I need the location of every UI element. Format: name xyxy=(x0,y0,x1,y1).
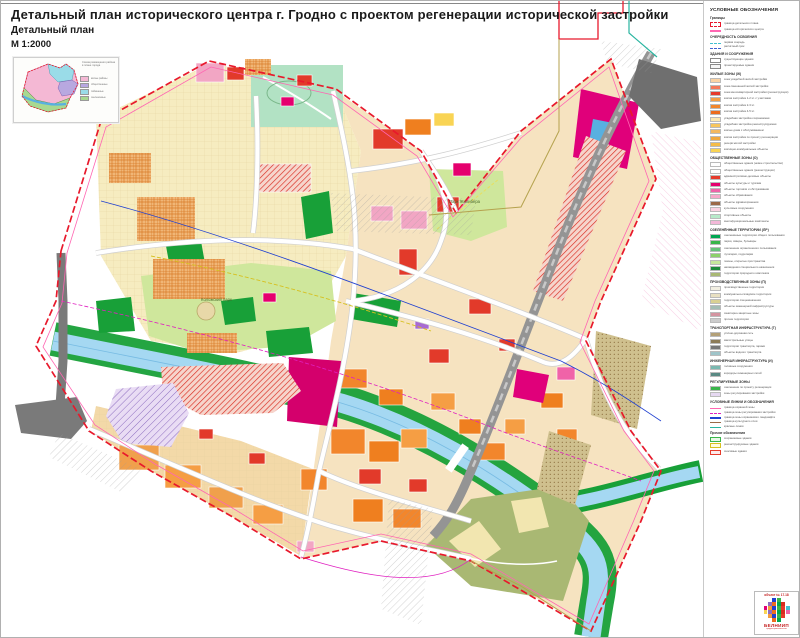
inset-swatch-icon xyxy=(80,89,89,95)
legend-row: усадебная застройка сохраняемая xyxy=(710,117,797,122)
legend-section-header: ОБЩЕСТВЕННЫЕ ЗОНЫ (О) xyxy=(710,156,797,160)
legend-swatch-icon xyxy=(710,272,721,277)
legend-swatch-icon xyxy=(710,129,721,134)
legend-row: озеленённые территории общего пользовани… xyxy=(710,234,797,239)
page-subtitle: Детальный план xyxy=(11,25,701,36)
legend-swatch-icon xyxy=(710,123,721,128)
legend-swatch-icon xyxy=(710,247,721,252)
legend-row-label: территории спецназначения xyxy=(724,299,761,302)
legend-swatch-icon xyxy=(710,162,721,167)
legend-row-label: спортивные объекты xyxy=(724,214,751,217)
legend-row-label: первая очередь xyxy=(724,41,745,44)
legend-row-label: реконструируемые здания xyxy=(724,443,758,446)
scale-label: М 1:2000 xyxy=(11,39,701,50)
kolozha-park-label: Коложский парк xyxy=(201,297,232,302)
legend-row-label: жилая застройка по проекту регенерации xyxy=(724,136,778,139)
legend-swatch-icon xyxy=(710,48,721,49)
inset-legend-label: общественные xyxy=(91,84,108,86)
legend-swatch-icon xyxy=(710,104,721,109)
legend-section-header: ТРАНСПОРТНАЯ ИНФРАСТРУКТУРА (Т) xyxy=(710,326,797,330)
legend-row: зоны регулирования застройки xyxy=(710,392,797,397)
legend-swatch-icon xyxy=(710,413,721,414)
gilibert-park-label: Парк Жилибера xyxy=(449,199,481,204)
legend-swatch-icon xyxy=(710,148,721,153)
legend-row: жилая застройка 1-2 эт. с участками xyxy=(710,97,797,102)
logo-tile xyxy=(786,606,790,610)
legend-row: зона смешанной жилой застройки xyxy=(710,85,797,90)
legend-section-header: ИНЖЕНЕРНАЯ ИНФРАСТРУКТУРА (И) xyxy=(710,359,797,363)
logo-tile xyxy=(768,618,772,622)
legend-row-label: магистральные улицы xyxy=(724,339,753,342)
legend-row-label: жилая застройка 1-2 эт. с участками xyxy=(724,97,771,100)
legend-row: сохраняемые здания xyxy=(710,437,797,442)
inset-legend-label: озеленённые xyxy=(91,97,106,99)
legend-swatch-icon xyxy=(710,43,721,44)
legend-row-label: усадебная застройка сохраняемая xyxy=(724,117,769,120)
inset-note: Схема размещения района в плане города xyxy=(82,61,116,67)
legend-swatch-icon xyxy=(710,372,721,377)
legend-row-label: культовые сооружения xyxy=(724,207,754,210)
legend-swatch-icon xyxy=(710,422,721,423)
legend-row: общественные здания (реконструкция) xyxy=(710,169,797,174)
inset-legend: жилые районыобщественныепойменныеозеленё… xyxy=(80,76,116,102)
logo-tile xyxy=(764,598,768,602)
legend-row: спортивные объекты xyxy=(710,214,797,219)
legend-swatch-icon xyxy=(710,207,721,212)
legend-section: ЗДАНИЯ И СООРУЖЕНИЯсуществующие зданияпр… xyxy=(710,52,797,69)
legend-row-label: жилая застройка 4-5 эт. xyxy=(724,110,755,113)
inset-swatch-icon xyxy=(80,76,89,82)
legend-body: Границыграница детального планаграница и… xyxy=(710,16,797,455)
legend-row: санитарно-защитные зоны xyxy=(710,312,797,317)
legend-row-label: общественные здания (новое строительство… xyxy=(724,162,783,165)
legend-swatch-icon xyxy=(710,22,721,27)
legend-row-label: парки, скверы, бульвары xyxy=(724,240,756,243)
legend-row-label: резерв жилой застройки xyxy=(724,142,756,145)
legend-row-label: административно-деловые объекты xyxy=(724,175,771,178)
legend-row: объекты водного транспорта xyxy=(710,351,797,356)
inset-legend-row: общественные xyxy=(80,83,116,89)
legend-row: озеленение ограниченного пользования xyxy=(710,247,797,252)
legend-swatch-icon xyxy=(710,85,721,90)
legend-row: территории транспорта, гаражи xyxy=(710,345,797,350)
legend-row: магистральные улицы xyxy=(710,339,797,344)
legend-row: усадебная застройка реконструируемая xyxy=(710,123,797,128)
legend-section-header: ЖИЛЫЕ ЗОНЫ (Ж) xyxy=(710,72,797,76)
institute-stamp: объект № 17.18 БЕЛНИИП градостроительств… xyxy=(754,591,799,635)
legend-row-label: объекты образования xyxy=(724,194,752,197)
legend-row: газоны, открытые пространства xyxy=(710,260,797,265)
legend-row-label: территории природного комплекса xyxy=(724,272,769,275)
logo-tile xyxy=(764,606,768,610)
logo-tile xyxy=(772,606,776,610)
logo-tile xyxy=(781,614,785,618)
legend-row: коммунально-складские территории xyxy=(710,293,797,298)
plan-sheet: Детальный план исторического центра г. Г… xyxy=(0,0,800,638)
legend-row-label: лугопарки, гидропарки xyxy=(724,253,753,256)
legend-row: парки, скверы, бульвары xyxy=(710,240,797,245)
logo-tile xyxy=(768,598,772,602)
legend-row: улично-дорожная сеть xyxy=(710,332,797,337)
legend-row-label: объекты торговли и обслуживания xyxy=(724,188,769,191)
legend-row-label: граница исторического центра xyxy=(724,28,764,31)
legend-swatch-icon xyxy=(710,214,721,219)
logo-tile xyxy=(764,602,768,606)
legend-row: граница охранной зоны xyxy=(710,406,797,409)
legend-swatch-icon xyxy=(710,437,721,442)
legend-row-label: расчётный срок xyxy=(724,45,744,48)
legend-row-label: существующие здания xyxy=(724,58,753,61)
logo-tile xyxy=(777,614,781,618)
logo-tile xyxy=(786,602,790,606)
legend-swatch-icon xyxy=(710,450,721,455)
legend-row-label: насаждения специального назначения xyxy=(724,266,774,269)
legend-row: зона многоквартирной застройки (реконстр… xyxy=(710,91,797,96)
legend-section: РЕГУЛИРУЕМЫЕ ЗОНЫозеленение по проекту р… xyxy=(710,380,797,397)
legend-row-label: жилая застройка 2-3 эт. xyxy=(724,104,755,107)
legend-swatch-icon xyxy=(710,312,721,317)
legend-row: производственные территории xyxy=(710,286,797,291)
logo-tile xyxy=(777,598,781,602)
legend-row-label: головные сооружения xyxy=(724,365,753,368)
legend-swatch-icon xyxy=(710,142,721,147)
logo-tile xyxy=(777,606,781,610)
legend-row-label: граница зоны регулирования застройки xyxy=(724,411,775,414)
legend-row: многофункциональные комплексы xyxy=(710,220,797,225)
legend-row: жилая застройка 2-3 эт. xyxy=(710,104,797,109)
legend-row: административно-деловые объекты xyxy=(710,175,797,180)
legend-swatch-icon xyxy=(710,293,721,298)
legend-section: Границыграница детального планаграница и… xyxy=(710,16,797,32)
legend-swatch-icon xyxy=(710,175,721,180)
legend-section-header: ОЗЕЛЕНЁННЫЕ ТЕРРИТОРИИ (ЛР) xyxy=(710,228,797,232)
legend-row: территории природного комплекса xyxy=(710,272,797,277)
legend-row: граница зоны регулирования застройки xyxy=(710,411,797,414)
legend-swatch-icon xyxy=(710,260,721,265)
legend-row-label: зона смешанной жилой застройки xyxy=(724,85,768,88)
legend-row-label: улично-дорожная сеть xyxy=(724,332,753,335)
legend-row-label: жилые дома с обслуживанием xyxy=(724,129,764,132)
legend-row: лугопарки, гидропарки xyxy=(710,253,797,258)
legend-row-label: усадебная застройка реконструируемая xyxy=(724,123,776,126)
legend-swatch-icon xyxy=(710,286,721,291)
legend-row: головные сооружения xyxy=(710,365,797,370)
legend-row: озеленение по проекту регенерации xyxy=(710,386,797,391)
legend-swatch-icon xyxy=(710,194,721,199)
legend-row-label: зона многоквартирной застройки (реконстр… xyxy=(724,91,788,94)
legend-swatch-icon xyxy=(710,417,721,418)
logo-tile xyxy=(772,602,776,606)
legend-row-label: озеленение по проекту регенерации xyxy=(724,386,771,389)
legend-swatch-icon xyxy=(710,299,721,304)
legend-swatch-icon xyxy=(710,58,721,63)
legend-row: зона усадебной жилой застройки xyxy=(710,78,797,83)
legend-swatch-icon xyxy=(710,266,721,271)
institute-logo-icon xyxy=(764,598,790,622)
legend-swatch-icon xyxy=(710,169,721,174)
legend-row: жилая застройка по проекту регенерации xyxy=(710,136,797,141)
legend-row: насаждения специального назначения xyxy=(710,266,797,271)
legend-panel: УСЛОВНЫЕ ОБОЗНАЧЕНИЯ Границыграница дета… xyxy=(703,1,800,638)
legend-row-label: озеленённые территории общего пользовани… xyxy=(724,234,785,237)
legend-swatch-icon xyxy=(710,30,721,31)
logo-tile xyxy=(768,614,772,618)
legend-row-label: санитарно-защитные зоны xyxy=(724,312,759,315)
legend-row: резерв жилой застройки xyxy=(710,142,797,147)
legend-row: жилые дома с обслуживанием xyxy=(710,129,797,134)
legend-row-label: сносимые здания xyxy=(724,450,747,453)
legend-swatch-icon xyxy=(710,110,721,115)
legend-section: ИНЖЕНЕРНАЯ ИНФРАСТРУКТУРА (И)головные со… xyxy=(710,359,797,376)
legend-section-header: Прочие обозначения xyxy=(710,431,797,435)
legend-row-label: красные линии xyxy=(724,425,743,428)
legend-row-label: прочие территории xyxy=(724,318,749,321)
legend-swatch-icon xyxy=(710,427,721,428)
logo-tile xyxy=(786,598,790,602)
logo-tile xyxy=(777,610,781,614)
legend-row: реконструируемые здания xyxy=(710,443,797,448)
logo-tile xyxy=(786,618,790,622)
legend-row: культовые сооружения xyxy=(710,207,797,212)
legend-row-label: многофункциональные комплексы xyxy=(724,220,769,223)
page-title: Детальный план исторического центра г. Г… xyxy=(11,7,701,22)
legend-swatch-icon xyxy=(710,188,721,193)
legend-section: ОБЩЕСТВЕННЫЕ ЗОНЫ (О)общественные здания… xyxy=(710,156,797,225)
legend-row-label: газоны, открытые пространства xyxy=(724,260,765,263)
legend-section-header: ПРОИЗВОДСТВЕННЫЕ ЗОНЫ (П) xyxy=(710,280,797,284)
legend-row: красные линии xyxy=(710,425,797,428)
legend-section-header: УСЛОВНЫЕ ЛИНИИ И ОБОЗНАЧЕНИЯ xyxy=(710,400,797,404)
inset-swatch-icon xyxy=(80,96,89,102)
legend-row: жилая застройка 4-5 эт. xyxy=(710,110,797,115)
logo-tile xyxy=(781,602,785,606)
legend-row: проектируемые здания xyxy=(710,64,797,69)
legend-row-label: зона усадебной жилой застройки xyxy=(724,78,767,81)
logo-tile xyxy=(764,614,768,618)
legend-row-label: коммунально-складские территории xyxy=(724,293,771,296)
legend-row-label: граница охранной зоны xyxy=(724,406,755,409)
logo-tile xyxy=(777,618,781,622)
header: Детальный план исторического центра г. Г… xyxy=(11,7,701,50)
legend-row-label: зоны регулирования застройки xyxy=(724,392,764,395)
legend-row: объекты торговли и обслуживания xyxy=(710,188,797,193)
legend-row-label: объекты культуры и туризма xyxy=(724,182,761,185)
legend-swatch-icon xyxy=(710,305,721,310)
logo-tile xyxy=(786,614,790,618)
logo-tile xyxy=(772,618,776,622)
inset-legend-label: жилые районы xyxy=(91,78,107,80)
legend-swatch-icon xyxy=(710,332,721,337)
legend-title: УСЛОВНЫЕ ОБОЗНАЧЕНИЯ xyxy=(710,7,797,12)
legend-row-label: граница культурного слоя xyxy=(724,420,757,423)
legend-section: ЖИЛЫЕ ЗОНЫ (Ж)зона усадебной жилой застр… xyxy=(710,72,797,153)
legend-swatch-icon xyxy=(710,345,721,350)
logo-tile xyxy=(777,602,781,606)
legend-row: граница культурного слоя xyxy=(710,420,797,423)
logo-tile xyxy=(764,618,768,622)
logo-tile xyxy=(781,610,785,614)
legend-swatch-icon xyxy=(710,365,721,370)
legend-row-label: проектируемые здания xyxy=(724,64,754,67)
logo-tile xyxy=(781,618,785,622)
legend-swatch-icon xyxy=(710,64,721,69)
legend-swatch-icon xyxy=(710,386,721,391)
legend-row-label: территории транспорта, гаражи xyxy=(724,345,765,348)
legend-row-label: производственные территории xyxy=(724,286,764,289)
legend-section: Прочие обозначениясохраняемые зданияреко… xyxy=(710,431,797,455)
west-junction xyxy=(15,397,87,439)
logo-tile xyxy=(768,606,772,610)
object-number: объект № 17.18 xyxy=(764,593,788,597)
legend-row-label: объекты водного транспорта xyxy=(724,351,761,354)
legend-row: существующие здания xyxy=(710,58,797,63)
institute-subtitle: градостроительства xyxy=(766,628,786,630)
inset-legend-label: пойменные xyxy=(91,91,104,93)
legend-row: объекты здравоохранения xyxy=(710,201,797,206)
legend-swatch-icon xyxy=(710,117,721,122)
legend-section: УСЛОВНЫЕ ЛИНИИ И ОБОЗНАЧЕНИЯграница охра… xyxy=(710,400,797,428)
logo-tile xyxy=(764,610,768,614)
logo-tile xyxy=(781,606,785,610)
legend-section-header: Границы xyxy=(710,16,797,20)
legend-section: ОЗЕЛЕНЁННЫЕ ТЕРРИТОРИИ (ЛР)озеленённые т… xyxy=(710,228,797,277)
legend-section-header: ОЧЕРЕДНОСТЬ ОСВОЕНИЯ xyxy=(710,35,797,39)
legend-row-label: общественные здания (реконструкция) xyxy=(724,169,775,172)
legend-swatch-icon xyxy=(710,408,721,409)
legend-swatch-icon xyxy=(710,201,721,206)
legend-row: коридоры инженерных сетей xyxy=(710,372,797,377)
legend-row: объекты инженерной инфраструктуры xyxy=(710,305,797,310)
legend-row-label: озеленение ограниченного пользования xyxy=(724,247,776,250)
west-highway xyxy=(59,253,63,421)
legend-row: объекты культуры и туризма xyxy=(710,182,797,187)
logo-tile xyxy=(772,610,776,614)
legend-section-header: РЕГУЛИРУЕМЫЕ ЗОНЫ xyxy=(710,380,797,384)
logo-tile xyxy=(772,614,776,618)
legend-swatch-icon xyxy=(710,182,721,187)
legend-swatch-icon xyxy=(710,78,721,83)
legend-swatch-icon xyxy=(710,443,721,448)
legend-row-label: объекты здравоохранения xyxy=(724,201,758,204)
inset-legend-row: пойменные xyxy=(80,89,116,95)
legend-row: территории спецназначения xyxy=(710,299,797,304)
legend-swatch-icon xyxy=(710,136,721,141)
legend-swatch-icon xyxy=(710,253,721,258)
legend-swatch-icon xyxy=(710,318,721,323)
legend-swatch-icon xyxy=(710,351,721,356)
legend-section: ТРАНСПОРТНАЯ ИНФРАСТРУКТУРА (Т)улично-до… xyxy=(710,326,797,356)
logo-tile xyxy=(768,610,772,614)
legend-row: расчётный срок xyxy=(710,45,797,48)
legend-row-label: объекты инженерной инфраструктуры xyxy=(724,305,774,308)
inset-swatch-icon xyxy=(80,83,89,89)
logo-tile xyxy=(786,610,790,614)
legend-row: граница детального плана xyxy=(710,22,797,27)
legend-swatch-icon xyxy=(710,91,721,96)
legend-row: общественные здания (новое строительство… xyxy=(710,162,797,167)
legend-row-label: сохраняемые здания xyxy=(724,437,751,440)
inset-legend-row: жилые районы xyxy=(80,76,116,82)
legend-row-label: жилищно-коммунальные объекты xyxy=(724,148,768,151)
legend-row: жилищно-коммунальные объекты xyxy=(710,148,797,153)
legend-row: объекты образования xyxy=(710,194,797,199)
legend-row: граница исторического центра xyxy=(710,28,797,31)
inset-legend-row: озеленённые xyxy=(80,96,116,102)
legend-swatch-icon xyxy=(710,240,721,245)
legend-swatch-icon xyxy=(710,220,721,225)
legend-row-label: коридоры инженерных сетей xyxy=(724,372,762,375)
logo-tile xyxy=(768,602,772,606)
legend-swatch-icon xyxy=(710,339,721,344)
legend-row: сносимые здания xyxy=(710,450,797,455)
legend-section-header: ЗДАНИЯ И СООРУЖЕНИЯ xyxy=(710,52,797,56)
legend-section: ПРОИЗВОДСТВЕННЫЕ ЗОНЫ (П)производственны… xyxy=(710,280,797,323)
legend-row: прочие территории xyxy=(710,318,797,323)
legend-swatch-icon xyxy=(710,234,721,239)
legend-row-label: граница детального плана xyxy=(724,22,758,25)
inset-overview-map: Схема размещения района в плане города ж… xyxy=(13,57,119,123)
legend-section: ОЧЕРЕДНОСТЬ ОСВОЕНИЯпервая очередьрасчёт… xyxy=(710,35,797,49)
logo-tile xyxy=(772,598,776,602)
legend-swatch-icon xyxy=(710,392,721,397)
logo-tile xyxy=(781,598,785,602)
legend-swatch-icon xyxy=(710,97,721,102)
